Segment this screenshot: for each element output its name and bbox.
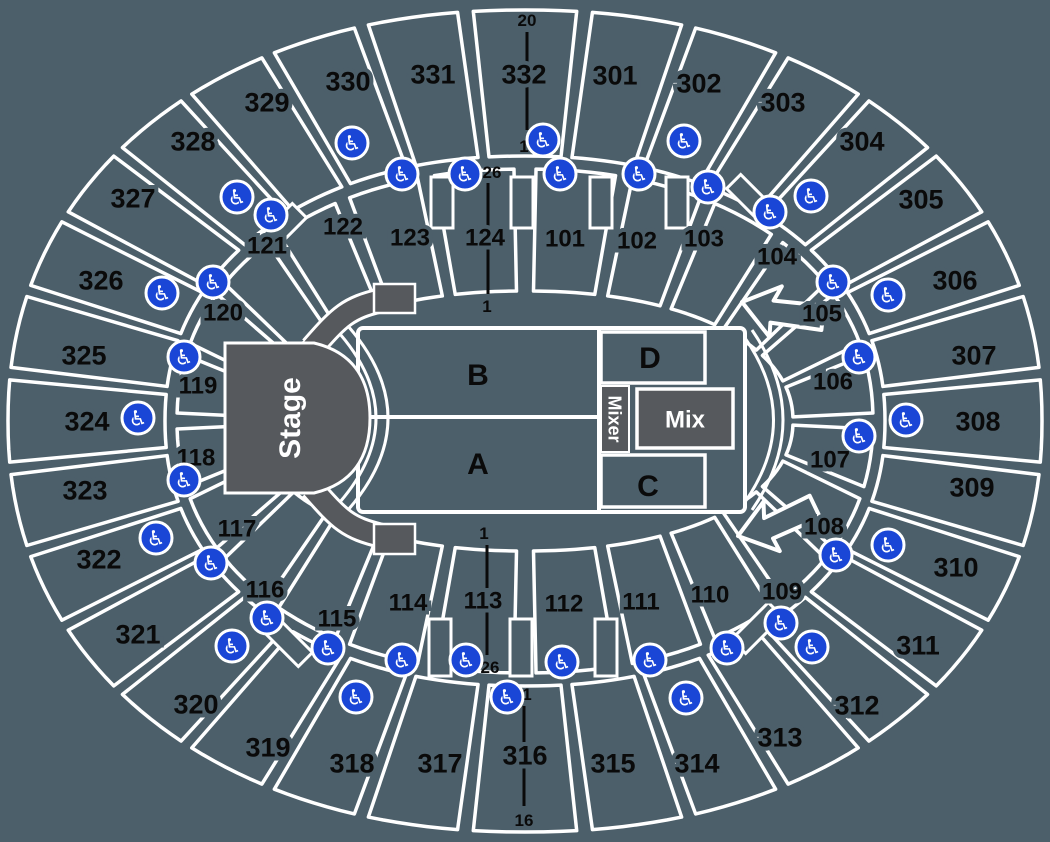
upper-section-label-307: 307 [951,341,996,371]
upper-section-label-308: 308 [955,407,1000,437]
wheelchair-icon-glyph: ♿ [147,527,166,551]
wheelchair-icon-glyph: ♿ [553,651,572,675]
wheelchair-icon: ♿ [527,124,559,156]
row-number-124-inner: 1 [482,297,491,316]
lower-section-label-121: 121 [247,233,287,260]
row-number-332-outer: 20 [518,11,537,30]
lower-section-label-120: 120 [203,300,243,327]
wheelchair-icon-glyph: ♿ [347,686,366,710]
upper-section-label-311: 311 [896,631,940,661]
upper-section-label-326: 326 [78,266,123,296]
wheelchair-icon-glyph: ♿ [551,163,570,187]
wheelchair-icon-glyph: ♿ [228,186,247,210]
lower-section-label-108: 108 [804,514,844,541]
lower-section-label-122: 122 [323,214,363,241]
wheelchair-icon: ♿ [195,547,227,579]
wheelchair-icon-glyph: ♿ [498,686,517,710]
upper-section-label-310: 310 [933,553,978,583]
wheelchair-icon: ♿ [634,644,666,676]
mix-label: Mix [665,407,706,434]
wheelchair-icon: ♿ [216,630,248,662]
wheelchair-icon: ♿ [449,158,481,190]
wheelchair-icon-glyph: ♿ [456,163,475,187]
wheelchair-icon: ♿ [251,602,283,634]
wheelchair-icon-glyph: ♿ [319,637,338,661]
wheelchair-icon-glyph: ♿ [202,552,221,576]
lower-section-label-124: 124 [465,225,506,252]
wheelchair-icon: ♿ [754,196,786,228]
floor-section-label-D: D [639,342,661,375]
upper-section-label-331: 331 [410,60,455,90]
wheelchair-icon: ♿ [146,277,178,309]
wheelchair-icon: ♿ [168,341,200,373]
wheelchair-icon: ♿ [843,341,875,373]
wheelchair-icon-glyph: ♿ [772,612,791,636]
wheelchair-icon-glyph: ♿ [897,409,916,433]
wheelchair-icon: ♿ [336,127,368,159]
wheelchair-icon-glyph: ♿ [393,649,412,673]
arena-map-canvas: 3013023033043053063073083093103113123133… [0,0,1050,842]
wheelchair-icon: ♿ [544,158,576,190]
wheelchair-icon: ♿ [122,402,154,434]
upper-section-label-318: 318 [329,749,374,779]
upper-section-label-315: 315 [590,749,635,779]
wheelchair-icon-glyph: ♿ [850,425,869,449]
lower-section-label-103: 103 [684,226,724,253]
wheelchair-icon: ♿ [450,644,482,676]
wheelchair-icon: ♿ [796,631,828,663]
upper-section-label-313: 313 [757,723,802,753]
wheelchair-icon: ♿ [670,682,702,714]
wheelchair-icon-glyph: ♿ [761,201,780,225]
lower-section-label-107: 107 [810,447,850,474]
wheelchair-icon: ♿ [872,279,904,311]
wheelchair-icon: ♿ [872,529,904,561]
upper-section-label-320: 320 [173,690,218,720]
wheelchair-icon: ♿ [197,266,229,298]
wheelchair-icon-glyph: ♿ [850,346,869,370]
upper-section-label-305: 305 [898,185,943,215]
wheelchair-icon: ♿ [623,158,655,190]
wheelchair-icon: ♿ [692,171,724,203]
upper-section-label-329: 329 [244,88,289,118]
row-number-124-outer: 26 [483,163,502,182]
upper-section-label-301: 301 [592,61,637,91]
wheelchair-icon-glyph: ♿ [827,544,846,568]
wheelchair-icon-glyph: ♿ [153,282,172,306]
lower-section-label-111: 111 [622,589,659,616]
lower-section-label-112: 112 [545,591,584,618]
wheelchair-icon: ♿ [817,266,849,298]
lower-section-label-109: 109 [762,579,802,606]
wheelchair-icon-glyph: ♿ [534,129,553,153]
lower-section-label-102: 102 [617,228,657,255]
wheelchair-icon-glyph: ♿ [803,636,822,660]
arena-seat-map: 3013023033043053063073083093103113123133… [0,0,1050,842]
upper-section-label-304: 304 [839,127,884,157]
wheelchair-icon: ♿ [765,607,797,639]
upper-section-label-317: 317 [417,749,462,779]
wheelchair-icon: ♿ [168,464,200,496]
wheelchair-icon: ♿ [386,158,418,190]
wheelchair-icon-glyph: ♿ [343,132,362,156]
lower-section-label-115: 115 [318,606,357,633]
wheelchair-icon: ♿ [221,181,253,213]
upper-section-label-325: 325 [61,341,106,371]
tunnel [590,177,612,228]
lower-section-label-116: 116 [246,577,285,604]
wheelchair-icon-glyph: ♿ [630,163,649,187]
upper-section-label-306: 306 [932,266,977,296]
wheelchair-icon: ♿ [820,539,852,571]
stage-platform-top [374,284,415,313]
mixer-label: Mixer [605,395,625,442]
wheelchair-icon-glyph: ♿ [258,607,277,631]
wheelchair-icon-glyph: ♿ [223,635,242,659]
tunnel [595,619,617,676]
upper-section-label-323: 323 [62,476,107,506]
wheelchair-icon-glyph: ♿ [879,534,898,558]
tunnel [429,619,451,676]
wheelchair-icon-glyph: ♿ [393,163,412,187]
floor-section-label-B: B [467,359,489,392]
upper-section-label-322: 322 [76,545,121,575]
wheelchair-icon-glyph: ♿ [204,271,223,295]
floor-section-label-A: A [467,448,489,481]
lower-section-label-119: 119 [179,373,218,400]
tunnel [666,177,688,228]
upper-section-label-319: 319 [245,733,290,763]
wheelchair-icon-glyph: ♿ [824,271,843,295]
wheelchair-icon: ♿ [890,404,922,436]
stage-label: Stage [274,377,307,459]
wheelchair-icon: ♿ [843,420,875,452]
wheelchair-icon: ♿ [386,644,418,676]
wheelchair-icon-glyph: ♿ [718,637,737,661]
wheelchair-icon: ♿ [795,180,827,212]
wheelchair-icon: ♿ [340,681,372,713]
wheelchair-icon: ♿ [312,632,344,664]
upper-section-label-312: 312 [834,691,879,721]
lower-section-label-123: 123 [390,225,430,252]
wheelchair-icon-glyph: ♿ [675,130,694,154]
tunnel [431,177,453,228]
upper-section-label-302: 302 [676,69,721,99]
upper-section-label-324: 324 [64,407,109,437]
upper-section-label-330: 330 [325,67,370,97]
wheelchair-icon: ♿ [668,125,700,157]
lower-section-label-101: 101 [545,226,585,253]
tunnel [510,619,532,676]
wheelchair-icon-glyph: ♿ [699,176,718,200]
wheelchair-icon: ♿ [140,522,172,554]
lower-section-label-117: 117 [218,516,257,543]
upper-section-label-327: 327 [110,184,155,214]
wheelchair-icon-glyph: ♿ [802,185,821,209]
upper-section-label-303: 303 [760,88,805,118]
upper-section-label-328: 328 [170,127,215,157]
wheelchair-icon-glyph: ♿ [879,284,898,308]
wheelchair-icon: ♿ [546,646,578,678]
tunnel [511,177,533,228]
wheelchair-icon-glyph: ♿ [457,649,476,673]
wheelchair-icon-glyph: ♿ [175,469,194,493]
wheelchair-icon: ♿ [711,632,743,664]
lower-section-label-110: 110 [691,582,730,609]
upper-section-label-314: 314 [674,749,719,779]
row-number-316-outer: 16 [515,811,534,830]
lower-section-label-106: 106 [813,369,853,396]
wheelchair-icon-glyph: ♿ [175,346,194,370]
lower-section-label-114: 114 [389,590,428,617]
wheelchair-icon-glyph: ♿ [129,407,148,431]
lower-section-label-105: 105 [802,301,842,328]
upper-section-label-316: 316 [502,741,547,771]
wheelchair-icon-glyph: ♿ [641,649,660,673]
stage-platform-bottom [374,524,415,554]
wheelchair-icon: ♿ [491,681,523,713]
wheelchair-icon: ♿ [255,199,287,231]
lower-section-label-104: 104 [757,244,798,271]
upper-section-label-309: 309 [949,473,994,503]
wheelchair-icon-glyph: ♿ [677,687,696,711]
upper-section-label-321: 321 [115,620,160,650]
wheelchair-icon-glyph: ♿ [262,204,281,228]
upper-section-label-332: 332 [501,60,546,90]
floor-section-label-C: C [637,470,659,503]
row-number-113-inner: 1 [479,524,488,543]
lower-section-label-113: 113 [464,588,503,615]
